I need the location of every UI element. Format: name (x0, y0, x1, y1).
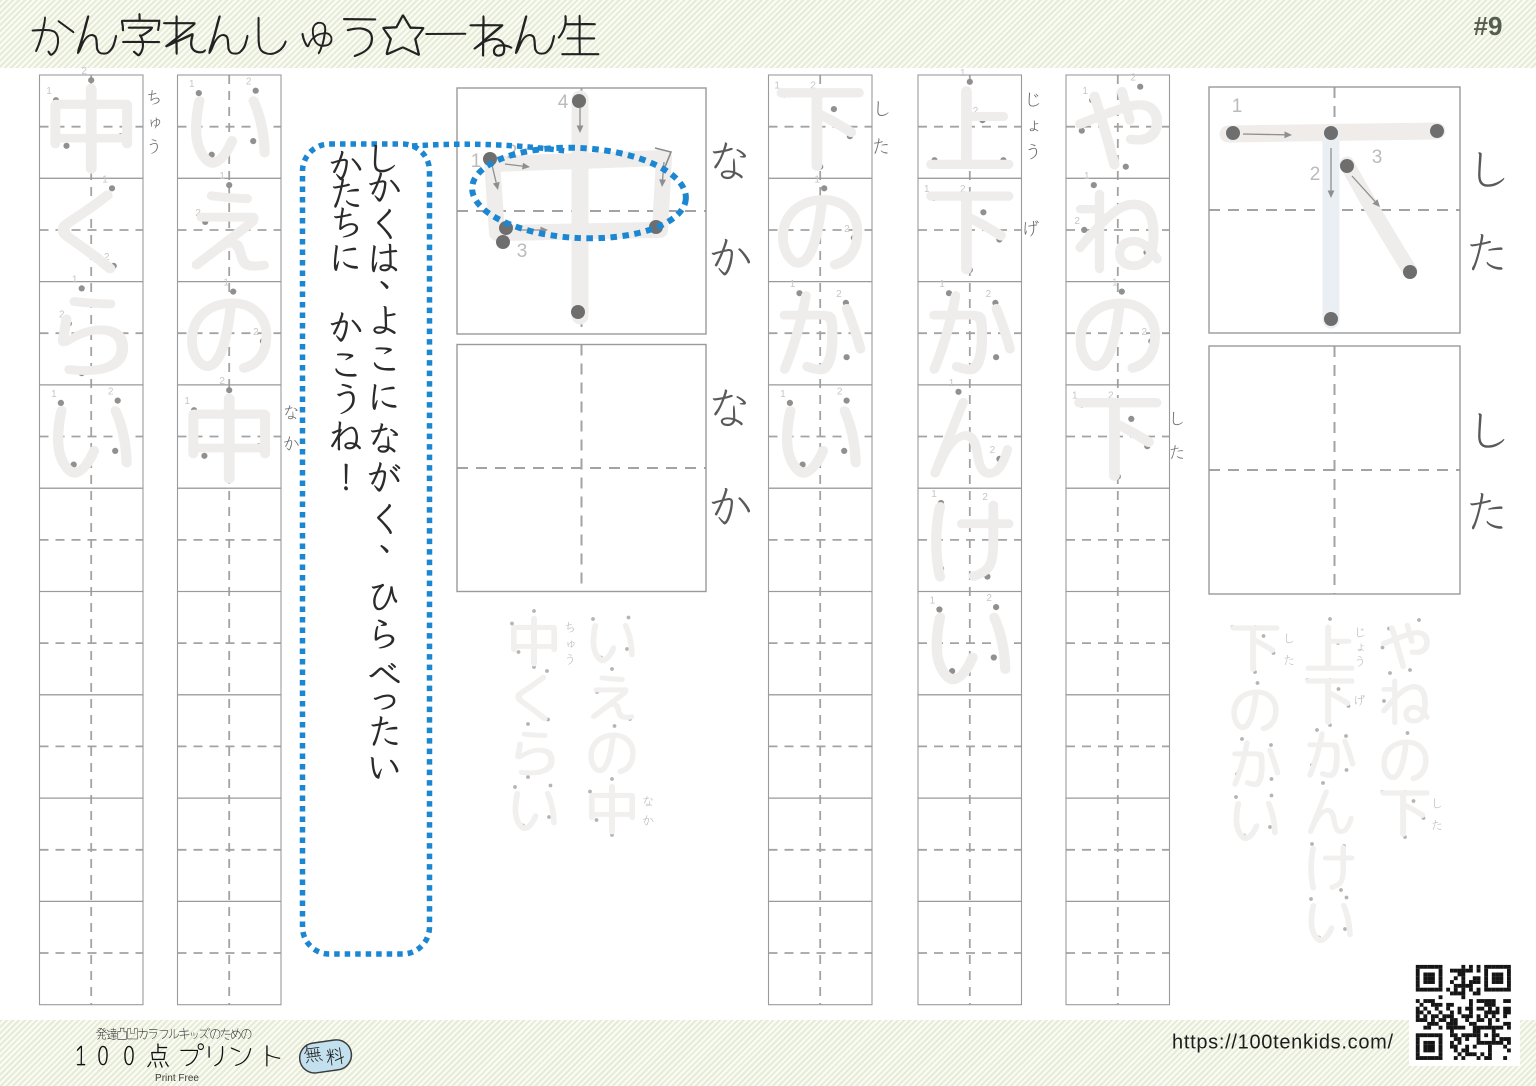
svg-text:1: 1 (931, 489, 937, 500)
svg-text:3: 3 (1372, 147, 1383, 168)
svg-text:1: 1 (102, 174, 108, 185)
svg-text:#9: #9 (1474, 11, 1503, 41)
svg-text:1: 1 (189, 79, 195, 90)
svg-text:2: 2 (982, 492, 988, 503)
svg-text:1: 1 (780, 389, 786, 400)
svg-text:2: 2 (1142, 327, 1148, 338)
svg-text:4: 4 (558, 92, 569, 113)
svg-text:1: 1 (930, 596, 936, 607)
svg-text:1: 1 (1112, 278, 1118, 289)
svg-text:1: 1 (949, 378, 955, 389)
svg-text:2: 2 (108, 387, 114, 398)
svg-text:1: 1 (814, 174, 820, 185)
svg-text:https://100tenkids.com/: https://100tenkids.com/ (1172, 1032, 1394, 1054)
svg-text:2: 2 (1310, 164, 1321, 185)
svg-text:1: 1 (219, 171, 225, 182)
svg-text:2: 2 (246, 77, 252, 88)
svg-text:1: 1 (939, 279, 945, 290)
svg-text:2: 2 (844, 224, 850, 235)
svg-text:1: 1 (1082, 86, 1088, 97)
svg-text:1: 1 (1084, 171, 1090, 182)
svg-text:2: 2 (986, 289, 992, 300)
svg-text:1: 1 (184, 396, 190, 407)
svg-text:3: 3 (517, 241, 528, 262)
svg-text:2: 2 (990, 445, 996, 456)
svg-text:2: 2 (219, 376, 225, 387)
svg-text:1: 1 (51, 389, 57, 400)
svg-text:2: 2 (836, 289, 842, 300)
svg-text:1: 1 (223, 278, 229, 289)
svg-text:1: 1 (790, 279, 796, 290)
svg-text:2: 2 (253, 327, 259, 338)
svg-text:1: 1 (960, 68, 966, 79)
svg-text:1: 1 (1232, 96, 1243, 117)
svg-text:Print Free: Print Free (155, 1073, 199, 1084)
svg-text:2: 2 (837, 387, 843, 398)
svg-text:2: 2 (1130, 73, 1136, 84)
svg-text:2: 2 (81, 66, 87, 77)
svg-text:1: 1 (46, 86, 52, 97)
svg-text:2: 2 (1074, 216, 1080, 227)
svg-text:1: 1 (72, 274, 78, 285)
svg-text:2: 2 (986, 593, 992, 604)
